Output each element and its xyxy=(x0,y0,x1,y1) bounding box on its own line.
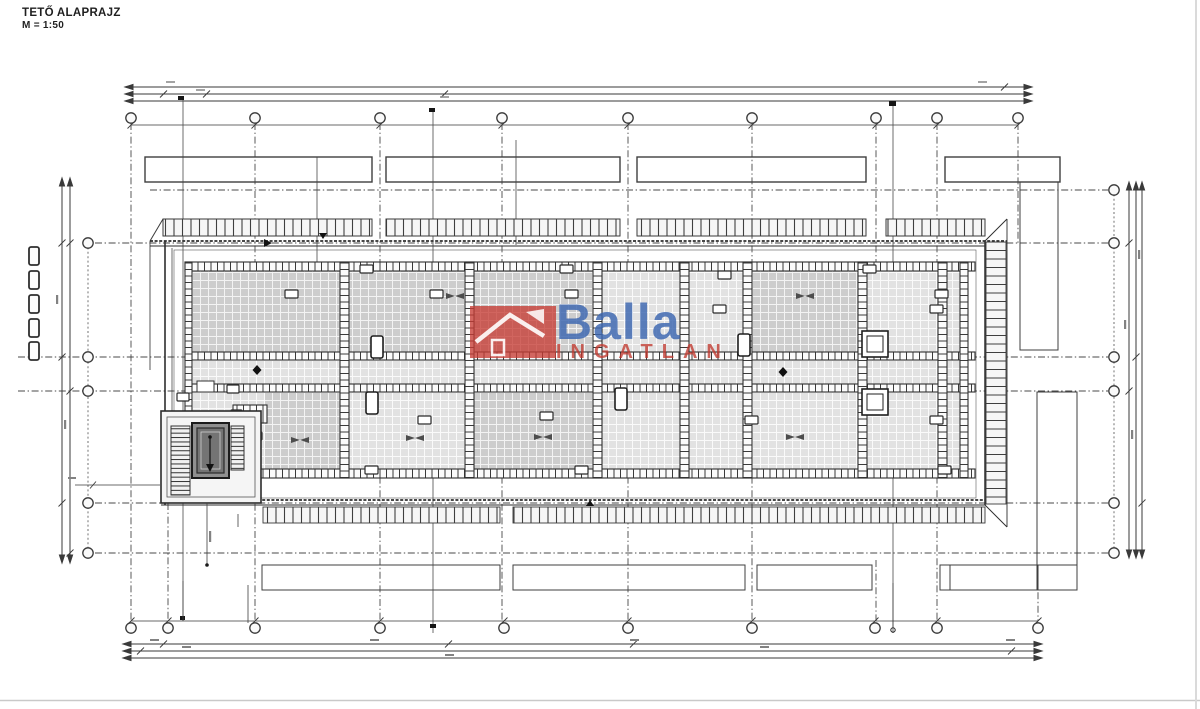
grid-axis-markers-left xyxy=(83,238,93,558)
dimension-lines-right xyxy=(1124,182,1146,558)
grid-axis-markers-top xyxy=(126,113,1023,129)
eave-hatch-right xyxy=(986,242,1006,504)
stair-treads-left xyxy=(171,426,190,495)
stair-treads-right xyxy=(231,426,244,470)
dimension-lines-bottom xyxy=(123,639,1042,661)
grid-axis-markers-bottom xyxy=(126,618,1043,634)
dimension-lines-top xyxy=(125,84,1032,104)
terrace-outlines xyxy=(262,565,1038,590)
legend-symbols xyxy=(29,247,39,360)
house-icon xyxy=(470,306,556,358)
blueprint-page: TETŐ ALAPRAJZ M = 1:50 xyxy=(0,0,1200,709)
grid-axis-markers-right xyxy=(1109,185,1119,558)
dormer-outlines xyxy=(145,157,1060,182)
eave-hatch-top xyxy=(150,219,985,241)
watermark-logo xyxy=(470,306,556,358)
watermark-subtitle: INGATLAN xyxy=(556,341,730,364)
dimension-micro-labels-top xyxy=(166,82,987,97)
eave-hatch-bottom xyxy=(263,507,985,523)
dimension-lines-left xyxy=(56,178,160,563)
